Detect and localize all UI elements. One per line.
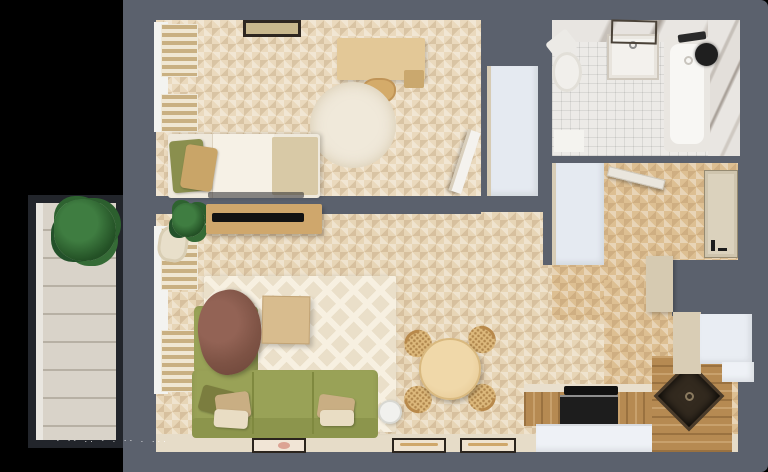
bath-mat [554, 130, 584, 152]
bathroom-marble-right-wall [708, 20, 740, 156]
kitchen-beige-unit [673, 312, 701, 374]
bed-beige-throw [272, 137, 318, 195]
hallway-closet [552, 163, 604, 265]
bathroom-mirror [611, 19, 658, 44]
bedroom-wall-picture [243, 20, 301, 37]
tan-pillow [180, 144, 218, 192]
sink-faucet [685, 392, 694, 401]
sofa-cushion-seam-2 [312, 372, 314, 434]
bed-duvet [212, 134, 274, 198]
upper-cabinet [722, 362, 754, 382]
fridge-top [700, 314, 752, 364]
oven [560, 395, 618, 426]
floor-plan-render: - -- .. - . -- . ... [0, 0, 768, 472]
balcony-wall-sliver [36, 203, 43, 440]
cooktop [564, 386, 618, 395]
bedroom-wardrobe [487, 66, 538, 196]
tv [212, 213, 304, 222]
wall-bathroom-bottom [552, 156, 740, 163]
shower-head-icon [695, 43, 718, 66]
sofa-cushion-seam-1 [252, 372, 254, 434]
balcony-plant-icon [54, 199, 116, 261]
living-plant-icon [172, 203, 205, 237]
bed-foot-shadow [208, 192, 304, 198]
bedroom-blind-bottom [161, 94, 198, 132]
coffee-table [262, 296, 311, 345]
sofa-pillow-cream-right [320, 410, 354, 426]
bedroom-blind-top [161, 24, 198, 77]
entry-door-handle [711, 240, 715, 251]
floor-lamp [378, 400, 402, 424]
entry-door-handle-2 [718, 248, 727, 251]
dining-table [419, 338, 481, 400]
watermark-text: - -- .. - . -- . ... [56, 437, 168, 444]
sofa-front-mat-motif [278, 442, 290, 449]
wall-kitchen-notch [672, 260, 738, 316]
bathtub-drain [684, 56, 693, 65]
entry-door [704, 170, 738, 258]
hall-tall-cabinet [646, 256, 673, 312]
sofa-pillow-cream-left [213, 409, 248, 429]
desk-drawer-unit [404, 70, 424, 88]
framed-mat-left-motif [400, 443, 438, 446]
framed-mat-right-motif [468, 443, 508, 446]
toilet-bowl [552, 52, 582, 92]
bedroom-round-rug [310, 82, 396, 168]
